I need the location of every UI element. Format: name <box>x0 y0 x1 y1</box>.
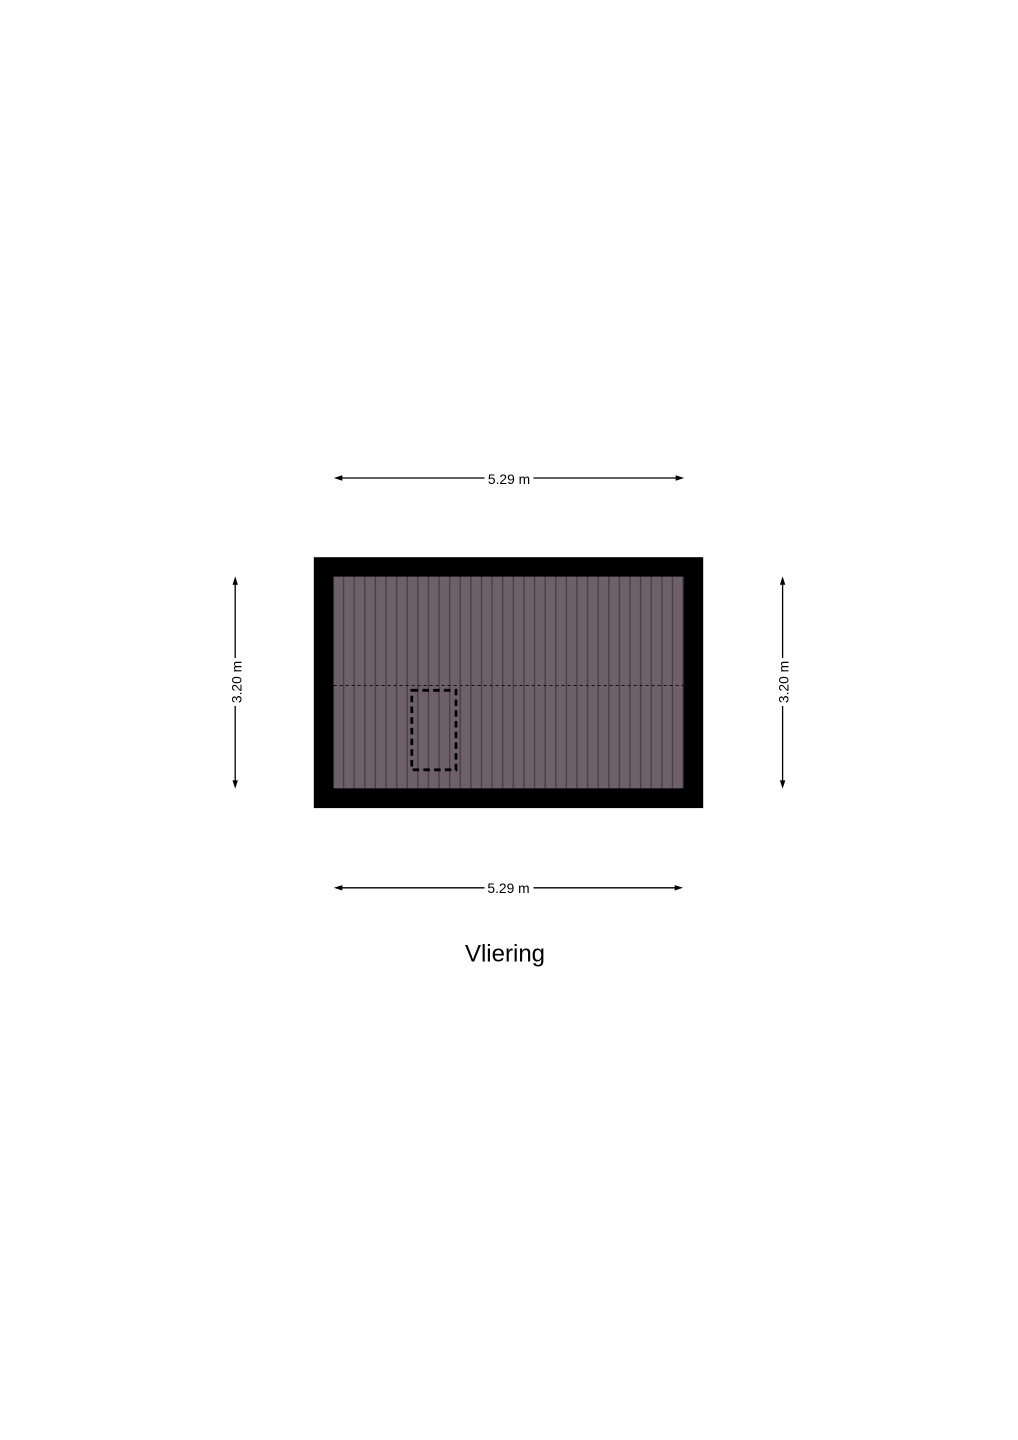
svg-text:3.20 m: 3.20 m <box>229 661 244 703</box>
svg-text:5.29 m: 5.29 m <box>488 472 530 487</box>
svg-text:Vliering: Vliering <box>465 941 545 968</box>
svg-text:3.20 m: 3.20 m <box>776 661 791 703</box>
svg-text:5.29 m: 5.29 m <box>487 881 529 896</box>
